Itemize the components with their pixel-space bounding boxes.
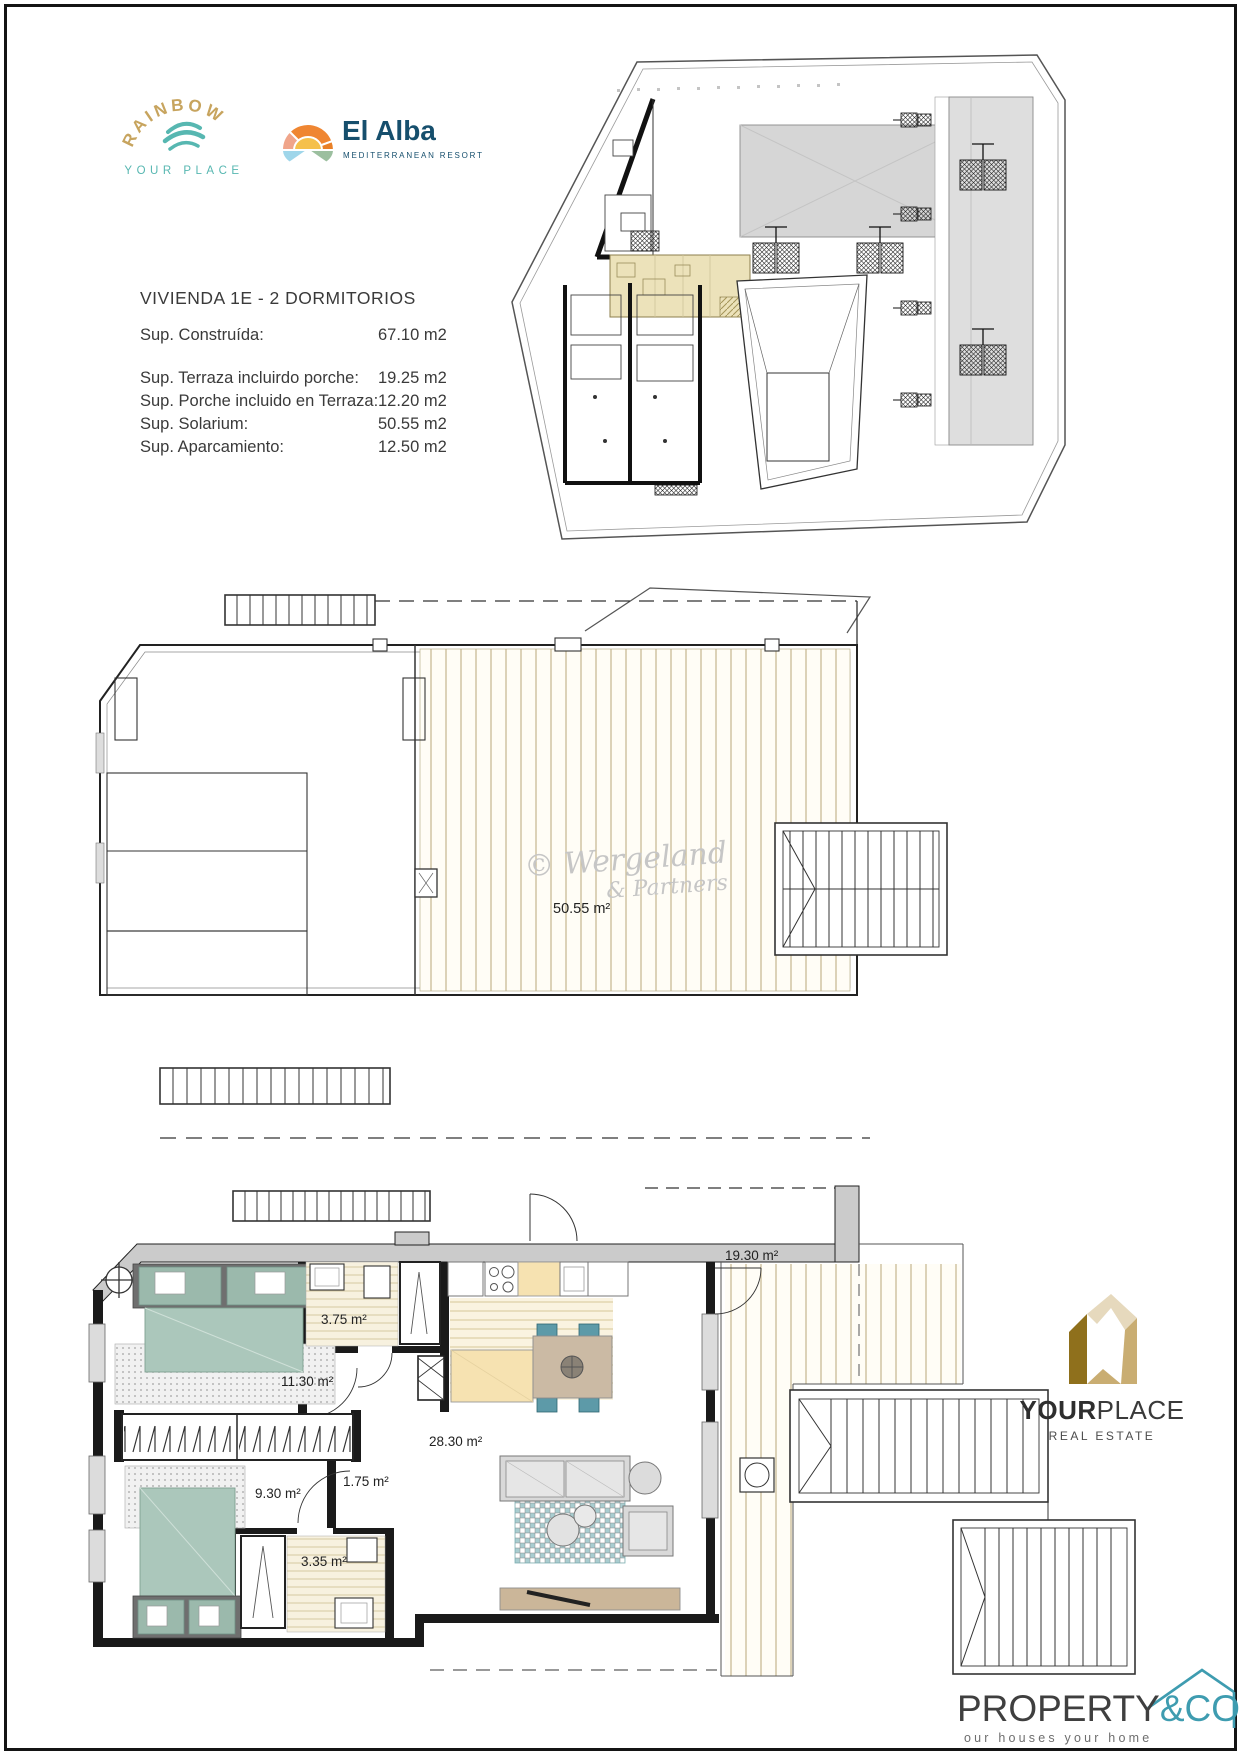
solarium-railing [225, 595, 375, 625]
sofa [500, 1456, 630, 1501]
stairs-upper-flight [790, 1390, 1048, 1502]
ac-unit-icon [893, 393, 931, 407]
rainbow-tagline: YOUR PLACE [124, 165, 243, 177]
rainbow-wave-icon [165, 124, 203, 149]
area-row: Sup. Porche incluido en Terraza: 12.20 m… [140, 392, 470, 414]
solarium-area-label: 50.55 m² [553, 901, 610, 917]
wardrobe [122, 1414, 353, 1460]
room-area-label: 3.35 m² [301, 1554, 347, 1569]
el-alba-sun-icon [282, 124, 334, 163]
floorplan-sheet: RAINBOW YOUR PLACE El Alba MEDITERRANEAN… [0, 0, 1241, 1755]
room-area-label: 3.75 m² [321, 1312, 367, 1327]
yourplace-tagline: REAL ESTATE [1012, 1429, 1192, 1443]
room-area-label: 9.30 m² [255, 1486, 301, 1501]
site-dotted-row [617, 83, 840, 92]
propertyco-name-main: PROPERTY [957, 1688, 1160, 1729]
room-area-label: 19.30 m² [725, 1248, 779, 1263]
toilet [364, 1266, 390, 1298]
shower [241, 1536, 285, 1628]
bedroom-2 [125, 1466, 245, 1638]
el-alba-tagline: MEDITERRANEAN RESORT [343, 151, 484, 160]
unit-title: VIVIENDA 1E - 2 DORMITORIOS [140, 288, 416, 309]
area-value: 19.25 m2 [378, 369, 447, 388]
site-upper-apartment-block [597, 99, 659, 257]
ac-unit-icon [893, 301, 931, 315]
yourplace-logo: YOURPLACE REAL ESTATE [1012, 1292, 1192, 1443]
area-row: Sup. Terraza incluirdo porche: 19.25 m2 [140, 369, 470, 391]
propertyco-name: PROPERTY&CO [957, 1688, 1240, 1730]
yourplace-name-bold: YOUR [1020, 1395, 1097, 1425]
el-alba-name: El Alba [342, 115, 436, 146]
area-value: 50.55 m2 [378, 415, 447, 434]
area-row: Sup. Aparcamiento: 12.50 m2 [140, 438, 470, 460]
rainbow-arched-name: RAINBOW [119, 95, 229, 149]
bathroom-2 [241, 1536, 385, 1632]
solarium-plan: © Wergeland & Partners 50.55 m² [85, 583, 1060, 1015]
toilet [347, 1538, 377, 1562]
area-label: Sup. Solarium: [140, 415, 248, 434]
stairs-lower-flight [953, 1502, 1135, 1674]
ac-unit [740, 1458, 774, 1492]
yourplace-name: YOURPLACE [1012, 1395, 1192, 1426]
shower [400, 1262, 440, 1344]
el-alba-logo: El Alba MEDITERRANEAN RESORT [278, 98, 488, 176]
neighbor-roof-outline [585, 588, 870, 633]
room-area-label: 28.30 m² [429, 1434, 483, 1449]
area-row: Sup. Solarium: 50.55 m2 [140, 415, 470, 437]
main-floor-plan: 3.75 m² 11.30 m² 9.30 m² 1.75 m² 3.35 m²… [85, 1058, 1140, 1698]
closet [418, 1356, 444, 1400]
propertyco-logo: PROPERTY&CO our houses your home [950, 1664, 1240, 1752]
site-courtyard [737, 275, 867, 489]
propertyco-name-suffix: &CO [1160, 1688, 1240, 1729]
double-bed [133, 1488, 241, 1638]
area-value: 12.20 m2 [378, 392, 447, 411]
site-right-building [935, 97, 1033, 445]
area-label: Sup. Terraza incluirdo porche: [140, 369, 359, 388]
door-arc [358, 1353, 392, 1387]
double-bed [133, 1264, 313, 1372]
area-label: Sup. Construída: [140, 326, 264, 345]
side-table [629, 1462, 661, 1494]
living-room [430, 1456, 717, 1670]
rainbow-logo: RAINBOW YOUR PLACE [118, 78, 250, 180]
room-area-label: 1.75 m² [343, 1474, 389, 1489]
area-label: Sup. Aparcamiento: [140, 438, 284, 457]
room-area-label: 11.30 m² [281, 1374, 334, 1389]
site-plan [505, 45, 1080, 550]
stove-icon [485, 1262, 518, 1296]
area-value: 12.50 m2 [378, 438, 447, 457]
porch-railing [233, 1191, 430, 1221]
tv-cabinet [500, 1588, 680, 1610]
area-row: Sup. Construída: 67.10 m2 [140, 326, 470, 348]
balcony-railing [160, 1068, 390, 1104]
propertyco-tagline: our houses your home [964, 1731, 1152, 1745]
entry-door [530, 1194, 577, 1241]
area-value: 67.10 m2 [378, 326, 447, 345]
yourplace-name-light: PLACE [1097, 1395, 1185, 1425]
area-label: Sup. Porche incluido en Terraza: [140, 392, 378, 411]
yourplace-house-icon [1059, 1292, 1145, 1386]
chimney [415, 869, 437, 897]
sink-icon [560, 1262, 588, 1296]
stairs-upper [775, 823, 947, 955]
